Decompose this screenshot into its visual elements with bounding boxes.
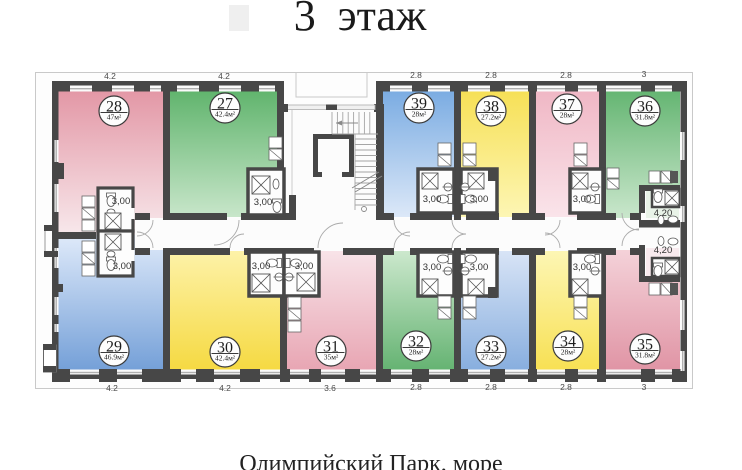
svg-text:4.2: 4.2 — [106, 383, 118, 393]
svg-text:31.8м²: 31.8м² — [635, 113, 656, 122]
svg-text:27.2м²: 27.2м² — [481, 353, 502, 362]
svg-text:3,00: 3,00 — [423, 194, 442, 205]
svg-text:2.8: 2.8 — [485, 70, 497, 80]
svg-text:4.2: 4.2 — [219, 383, 231, 393]
svg-text:28м²: 28м² — [560, 111, 575, 120]
svg-text:28м²: 28м² — [561, 348, 576, 357]
svg-text:2.8: 2.8 — [560, 382, 572, 392]
svg-text:3,00: 3,00 — [573, 194, 592, 205]
svg-text:42.4м²: 42.4м² — [215, 354, 236, 363]
svg-text:3,00: 3,00 — [295, 261, 314, 272]
svg-text:3,00: 3,00 — [252, 261, 271, 272]
svg-text:28м²: 28м² — [409, 348, 424, 357]
svg-text:3,00: 3,00 — [112, 196, 131, 207]
svg-text:3: 3 — [642, 382, 647, 392]
svg-text:3.6: 3.6 — [324, 383, 336, 393]
svg-text:2.8: 2.8 — [485, 382, 497, 392]
svg-text:28м²: 28м² — [412, 110, 427, 119]
svg-text:47м²: 47м² — [107, 113, 122, 122]
svg-text:Олимпийский Парк, море: Олимпийский Парк, море — [239, 451, 502, 470]
svg-text:3: 3 — [642, 69, 647, 79]
svg-text:4.2: 4.2 — [104, 71, 116, 81]
svg-text:2.8: 2.8 — [560, 70, 572, 80]
svg-text:46.9м²: 46.9м² — [104, 353, 125, 362]
svg-text:4,20: 4,20 — [654, 245, 673, 256]
svg-text:3,00: 3,00 — [423, 262, 442, 273]
svg-text:27.2м²: 27.2м² — [481, 113, 502, 122]
svg-text:3 этаж: 3 этаж — [294, 0, 427, 40]
svg-text:3,00: 3,00 — [573, 262, 592, 273]
svg-text:31.8м²: 31.8м² — [635, 351, 656, 360]
svg-text:3,00: 3,00 — [254, 197, 273, 208]
svg-text:42.4м²: 42.4м² — [215, 110, 236, 119]
svg-text:4.2: 4.2 — [218, 71, 230, 81]
svg-text:3,00: 3,00 — [470, 262, 489, 273]
svg-text:2.8: 2.8 — [410, 382, 422, 392]
svg-text:3,00: 3,00 — [113, 261, 132, 272]
svg-text:2.8: 2.8 — [410, 70, 422, 80]
svg-text:3,00: 3,00 — [470, 194, 489, 205]
svg-text:35м²: 35м² — [324, 353, 339, 362]
